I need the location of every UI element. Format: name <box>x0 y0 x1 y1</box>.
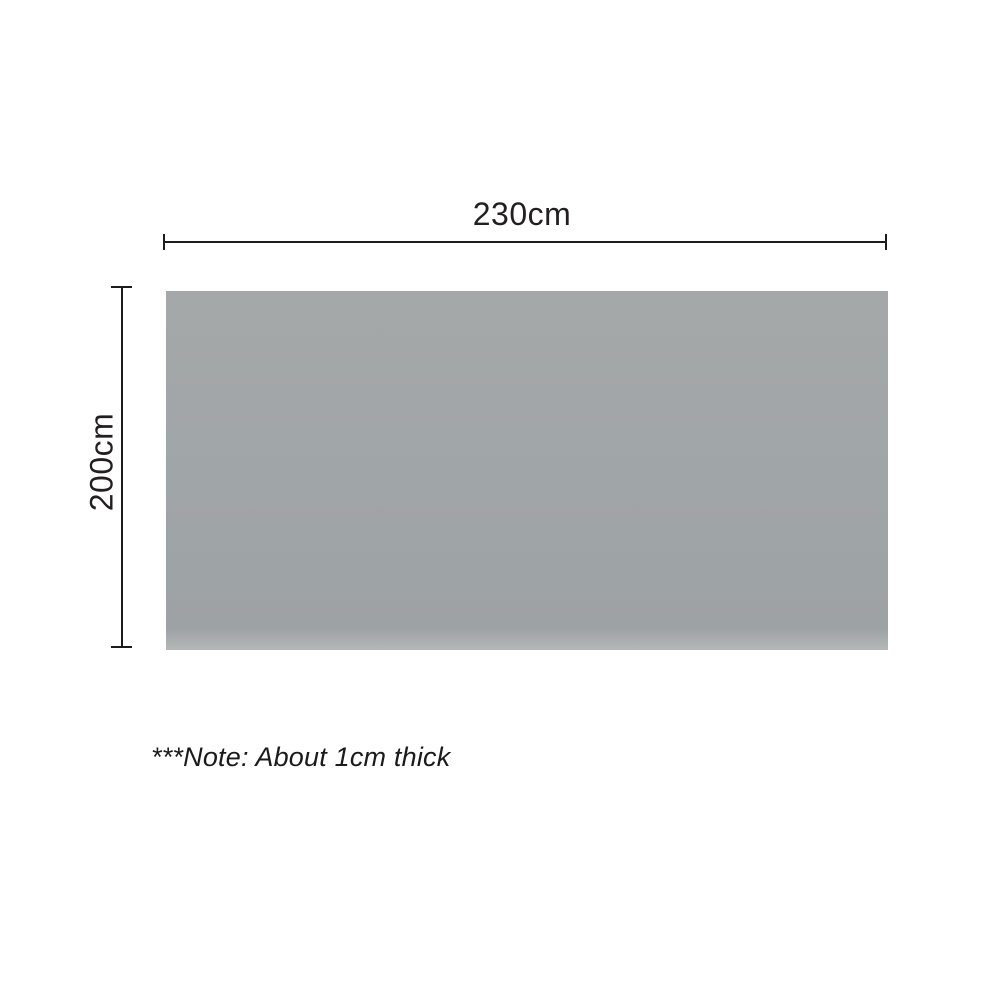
width-dimension-label: 230cm <box>163 196 881 232</box>
height-dimension-line <box>121 286 123 648</box>
height-dimension-label: 200cm <box>84 413 121 512</box>
product-rectangle <box>166 291 888 650</box>
product-dimension-diagram: 230cm 200cm ***Note: About 1cm thick <box>0 0 1000 1000</box>
thickness-note: ***Note: About 1cm thick <box>151 742 450 773</box>
width-dimension-line <box>163 241 887 243</box>
